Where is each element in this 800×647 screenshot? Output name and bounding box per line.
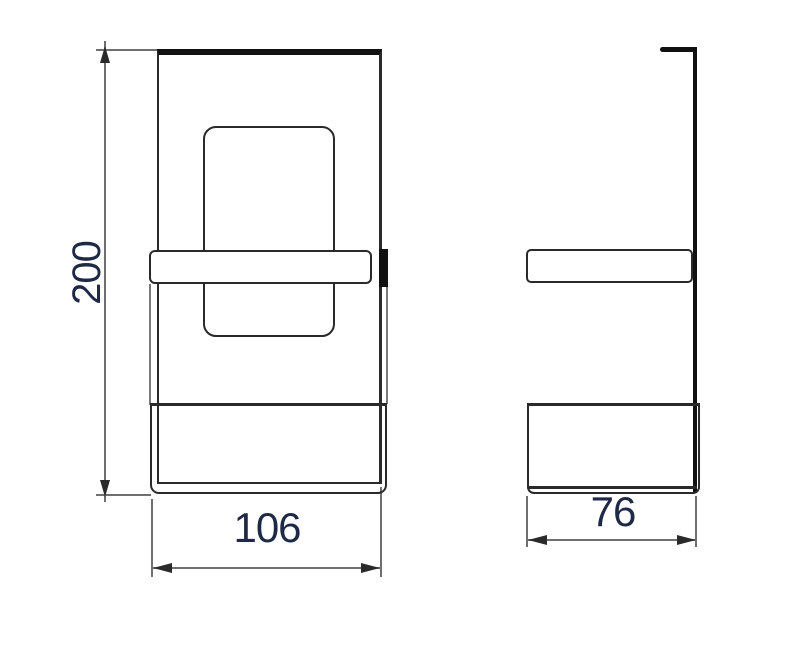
arrowhead-right-icon — [361, 563, 380, 573]
front-cross-bar — [149, 250, 372, 284]
dim-width-extension-right — [380, 487, 382, 577]
dim-width-label: 106 — [233, 507, 300, 549]
arrowhead-right-icon — [677, 535, 696, 545]
front-bottom-tray — [150, 403, 387, 494]
front-bar-end-cap — [379, 249, 388, 287]
side-cross-bar — [526, 249, 693, 283]
dim-depth-line — [527, 539, 697, 541]
drawing-canvas: 200 106 76 — [0, 0, 800, 647]
arrowhead-left-icon — [528, 535, 547, 545]
side-top-hook — [660, 47, 697, 52]
front-right-flange-edge — [386, 287, 388, 404]
arrowhead-left-icon — [153, 563, 172, 573]
front-rounded-cutout — [203, 126, 335, 337]
arrowhead-up-icon — [100, 46, 110, 63]
front-left-flange-edge — [149, 284, 151, 405]
arrowhead-down-icon — [100, 480, 110, 497]
dim-width-line — [152, 567, 381, 569]
dim-height-label: 200 — [67, 241, 107, 305]
dim-depth-label: 76 — [591, 491, 636, 533]
side-bottom-tray — [527, 403, 700, 494]
